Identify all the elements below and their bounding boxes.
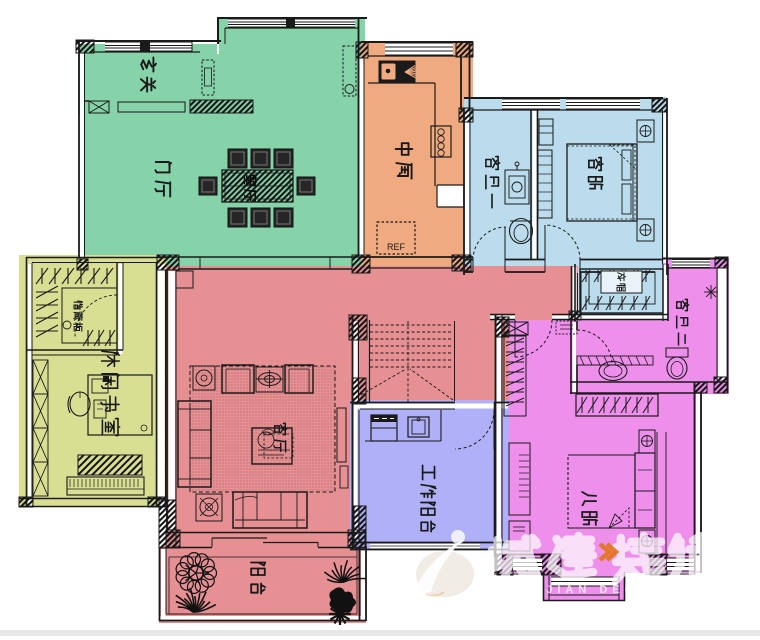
- svg-text:CHENGJIAN DECORATION: CHENGJIAN DECORATION: [482, 584, 723, 596]
- svg-text:REF: REF: [387, 242, 406, 252]
